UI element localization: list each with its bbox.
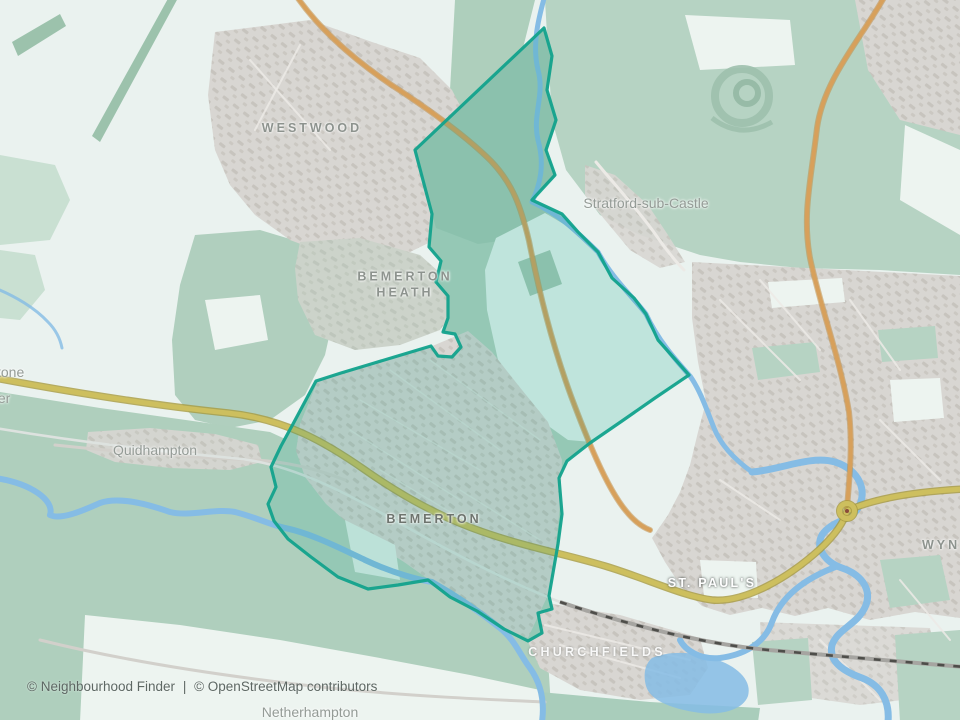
map-viewport[interactable]: WESTWOOD BEMERTON HEATH Stratford-sub-Ca… xyxy=(0,0,960,720)
attribution-brand: © Neighbourhood Finder xyxy=(27,679,175,694)
map-canvas[interactable] xyxy=(0,0,960,720)
map-attribution: © Neighbourhood Finder | © OpenStreetMap… xyxy=(25,679,379,694)
attribution-separator: | xyxy=(183,679,187,694)
attribution-osm-link[interactable]: © OpenStreetMap contributors xyxy=(194,679,377,694)
mini-roundabout xyxy=(840,504,855,519)
